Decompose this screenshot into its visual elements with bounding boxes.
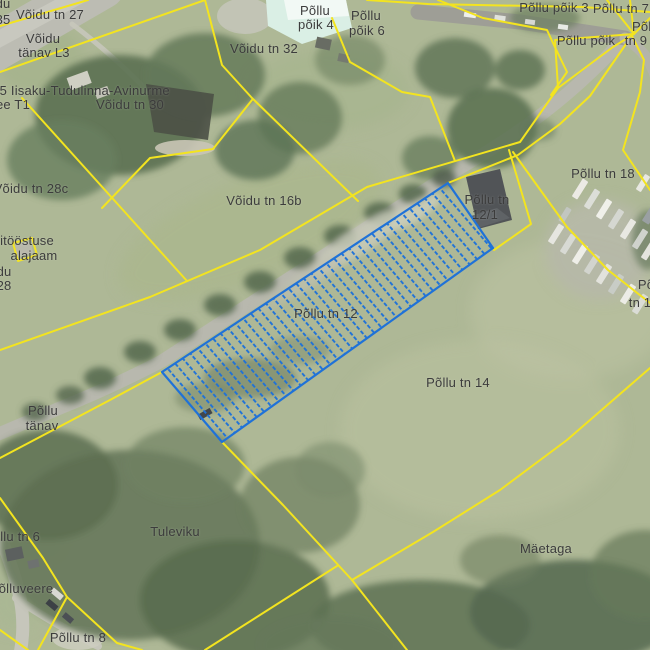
map-viewport[interactable]: du35Võidu tn 27Võidutänav L335 Iisaku-Tu… (0, 0, 650, 650)
aerial-imagery-layer (0, 0, 650, 650)
